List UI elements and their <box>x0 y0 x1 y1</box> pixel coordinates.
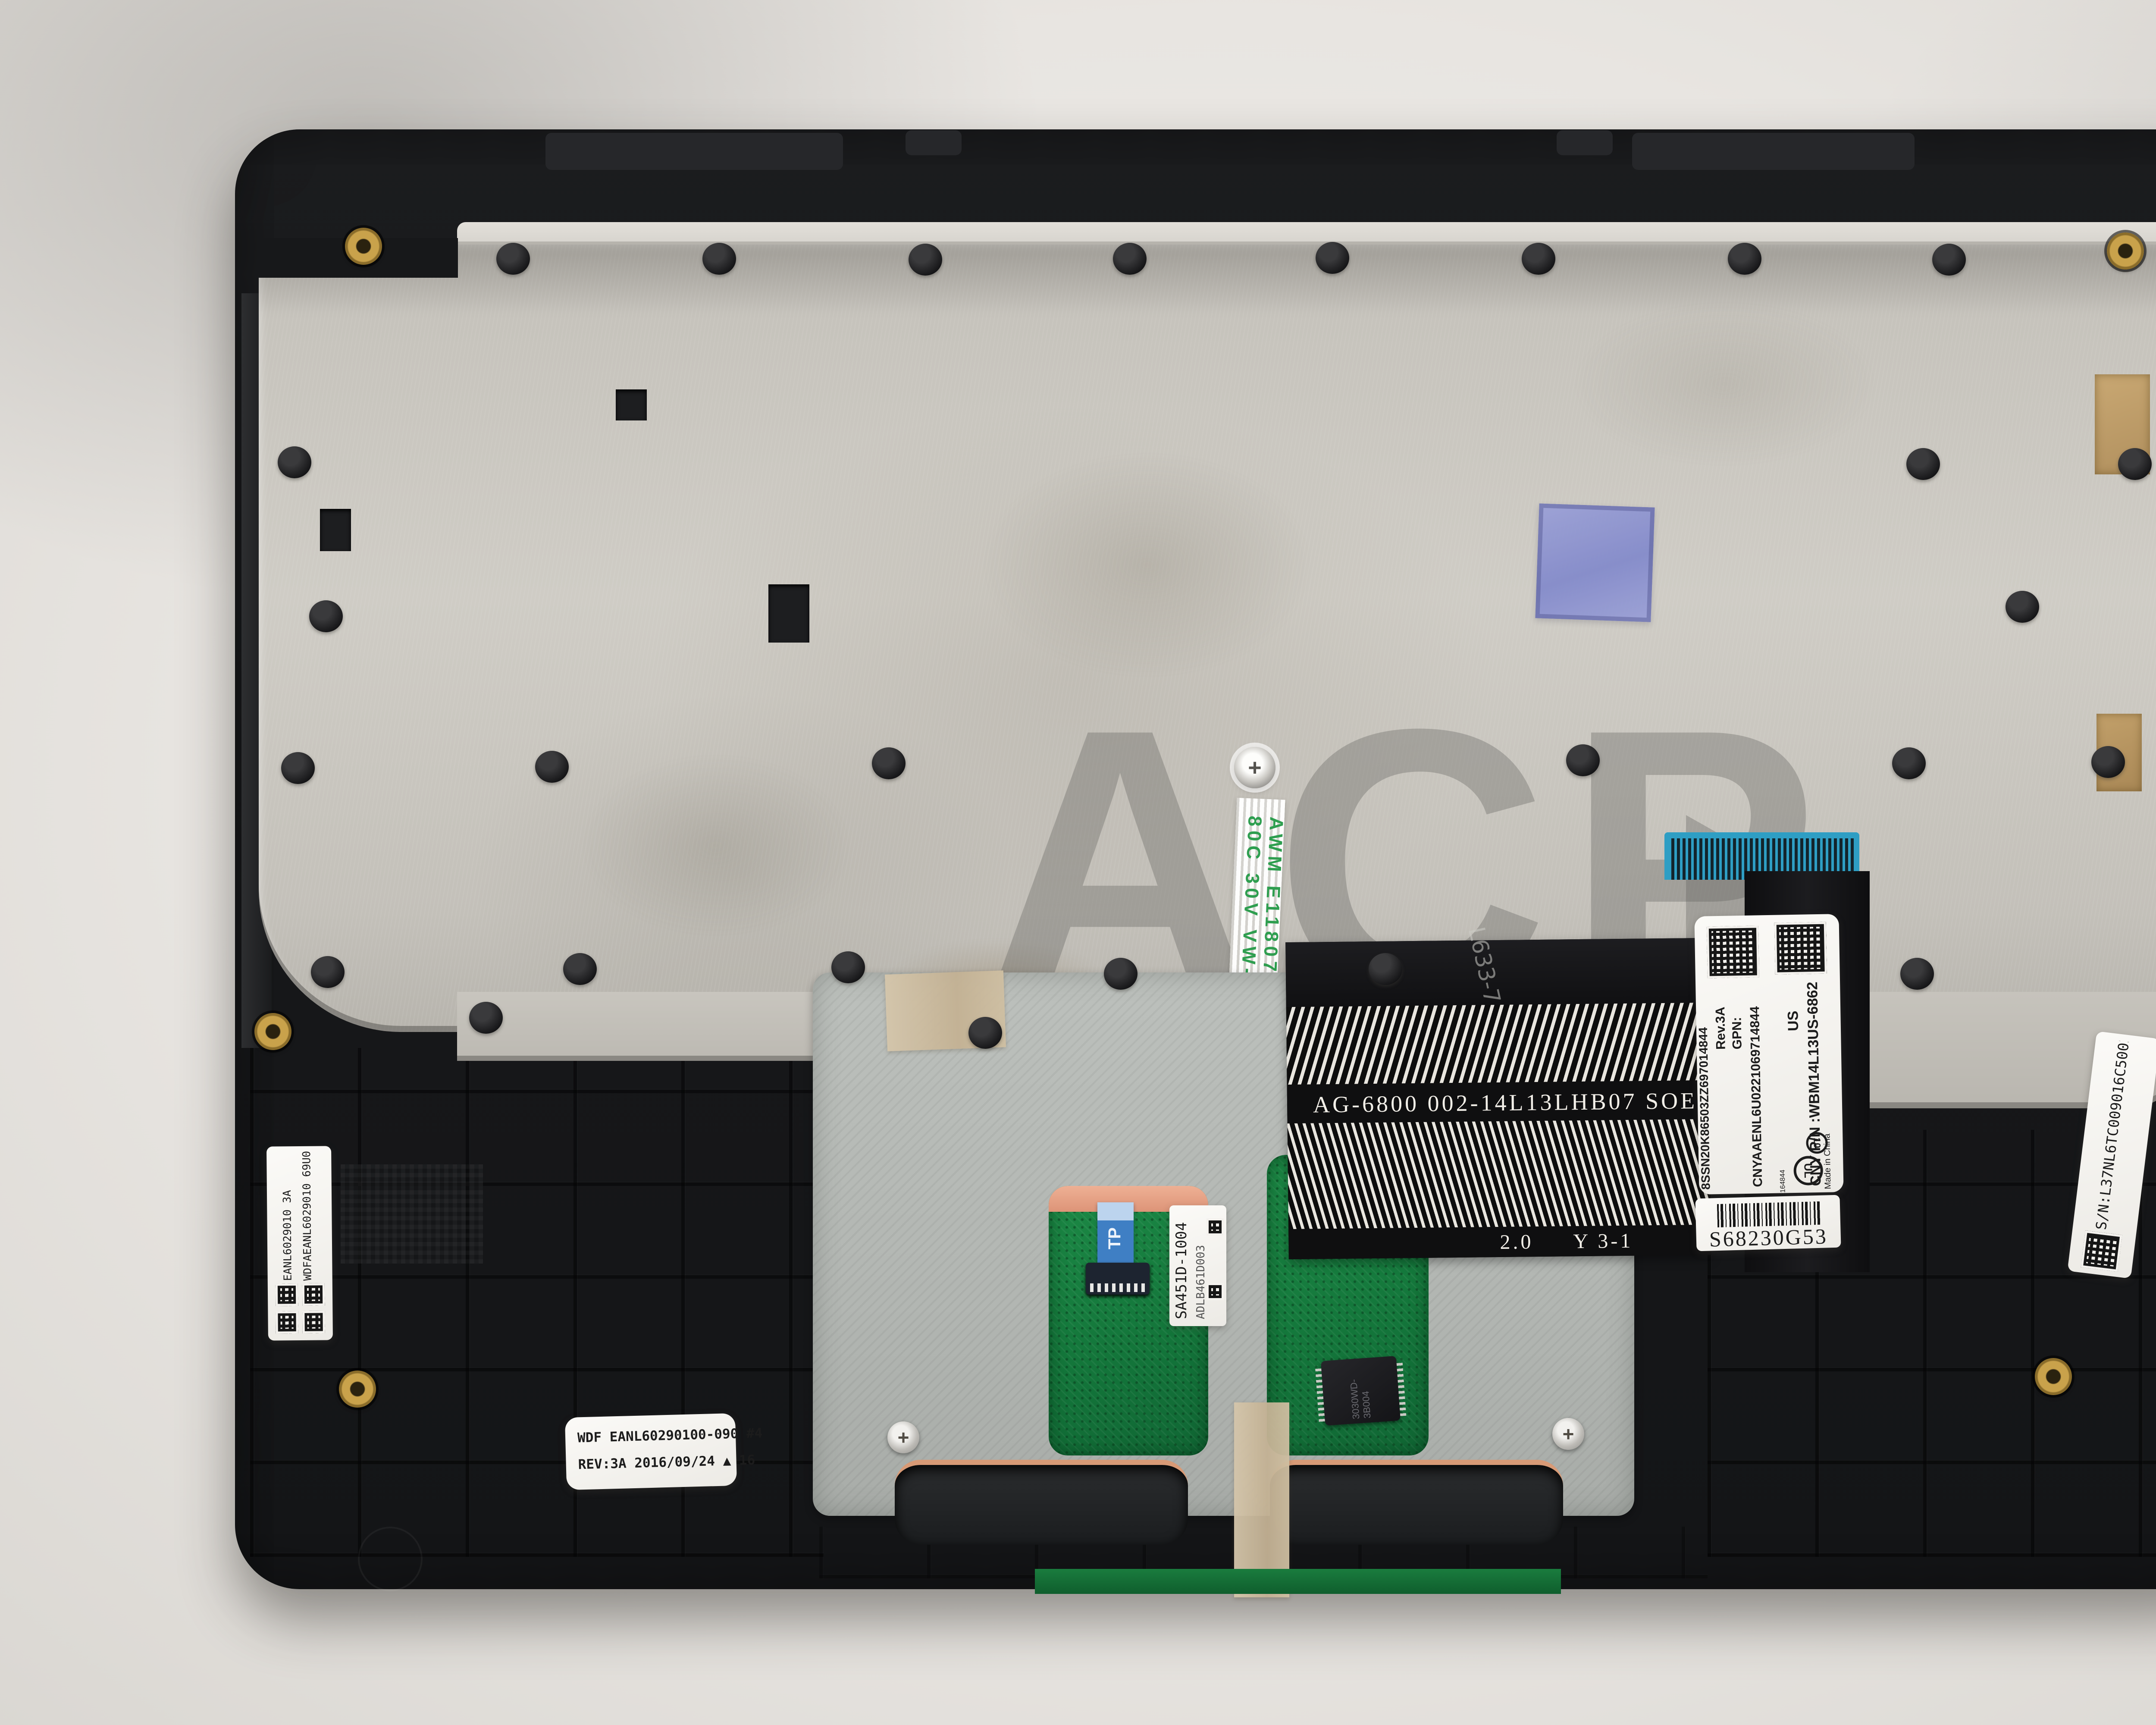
rubber-dot <box>968 1017 1002 1049</box>
part-label-pn: CNY P/N :WBM14L13US-6862 WBM14L1 <box>1804 979 1824 1186</box>
bracket-screw-left: + <box>887 1421 919 1453</box>
rubber-dot <box>1522 243 1555 275</box>
threaded-insert <box>2035 1358 2072 1395</box>
rubber-dot <box>831 951 865 983</box>
rubber-dot <box>1900 958 1934 990</box>
part-number-label: CNY P/N :WBM14L13US-6862 WBM14L1 US CNYA… <box>1694 914 1843 1195</box>
rubber-dot <box>278 446 311 478</box>
photo-stage: ACP + AWM E118077-K 2896 80C 30V VW-1 E1… <box>0 0 2156 1725</box>
part-label-madein: Made in China <box>1822 1120 1833 1189</box>
stain <box>1574 302 1876 466</box>
cable-thickness-text: 2.0 <box>1500 1230 1534 1254</box>
qr-code-icon <box>1206 1218 1224 1236</box>
molded-datamatrix <box>341 1164 483 1264</box>
threaded-insert <box>339 1371 376 1408</box>
rubber-dot <box>496 243 530 275</box>
pcb-bottom-edge <box>1035 1569 1561 1594</box>
rubber-dot <box>563 953 597 985</box>
rubber-dot <box>1113 243 1147 275</box>
qr-code-icon <box>2081 1230 2122 1272</box>
rubber-dot <box>1566 744 1600 776</box>
rubber-dot <box>1104 958 1138 990</box>
mold-label-line1: WDFAEANL6029010 69U00840 <box>300 1151 314 1281</box>
rubber-dot <box>909 244 942 276</box>
threaded-insert <box>2107 232 2144 270</box>
rubber-dot <box>2091 746 2125 778</box>
qr-code-icon <box>302 1311 325 1333</box>
touchpad-ffc-connector <box>1086 1263 1150 1295</box>
blue-masking-tape <box>1535 503 1655 622</box>
serial-number-text: S/N:L37NL6TC009016C5002184 <box>2093 1041 2132 1231</box>
part-label-code1: CNYAAENL6U0221069714844 <box>1747 980 1765 1187</box>
qr-code-icon <box>276 1311 298 1333</box>
rubber-dot <box>469 1002 503 1034</box>
plate-cutout <box>320 509 351 551</box>
latch-tab-right <box>1557 130 1613 155</box>
rubber-dot <box>1906 448 1940 480</box>
mold-code-label: WDFAEANL6029010 69U00840 EANL6029010 3A <box>266 1146 333 1340</box>
center-screw: + <box>1234 747 1275 788</box>
touchpad-label-inner: ADLB461D003 <box>1194 1211 1207 1319</box>
rubber-dot <box>1932 244 1966 276</box>
rubber-dot <box>1369 953 1402 985</box>
plate-cutout <box>616 389 647 420</box>
datamatrix-icon <box>1774 922 1827 975</box>
rubber-dot <box>1728 243 1761 275</box>
touchpad-label-outer: SA451D-1004 <box>1173 1211 1190 1319</box>
ul-code: E164844 <box>1779 1150 1787 1197</box>
cable-stripe-zone-upper <box>1286 1003 1710 1085</box>
bracket-cutout-right <box>1270 1460 1563 1545</box>
datamatrix-icon <box>1707 925 1759 978</box>
date-code-label: WDF EANL60290100-090 #4 REV:3A 2016/09/2… <box>565 1413 737 1490</box>
mold-label-line2: EANL6029010 3A <box>280 1151 294 1281</box>
rubber-dot <box>2118 448 2152 480</box>
stain <box>582 755 849 936</box>
part-label-region: US <box>1784 979 1802 1032</box>
rubber-dot <box>872 747 906 779</box>
barcode-icon <box>1717 1201 1821 1227</box>
bracket-screw-right: + <box>1552 1418 1584 1450</box>
threaded-insert <box>345 228 382 265</box>
rubber-dot <box>1892 747 1926 779</box>
rubber-dot <box>281 752 315 784</box>
cable-code-text: Y 3-1 <box>1573 1229 1633 1253</box>
backplate-top-shade <box>259 241 2156 313</box>
rib-grid-left <box>250 1048 824 1557</box>
cable-gloss-zone: L633-7 <box>1285 938 1709 1007</box>
cable-stripe-zone-lower <box>1288 1119 1711 1229</box>
bracket-cutout-left <box>895 1460 1188 1545</box>
connector-pins <box>1090 1283 1145 1292</box>
tp-flex-label: TP <box>1105 1227 1125 1249</box>
hinge-notch-right <box>1632 133 1915 170</box>
service-tag-text: S68230G53 <box>1696 1223 1841 1252</box>
plate-cutout <box>768 584 809 643</box>
fabric-tape-bottom <box>1234 1402 1289 1597</box>
latch-tab-left <box>906 130 962 155</box>
rubber-dot <box>309 600 343 632</box>
date-label-line2: REV:3A 2016/09/24 ▲ 16 <box>578 1452 755 1473</box>
hinge-notch-left <box>545 133 843 170</box>
cable-print-text: AG-6800 002-14L13LHB07 SOE-N <box>1313 1087 1727 1118</box>
stain <box>983 453 1311 677</box>
rubber-dot <box>535 751 569 783</box>
qr-code-icon <box>1206 1283 1224 1300</box>
touchpad-main-cable: L633-7 AG-6800 002-14L13LHB07 SOE-N 2.0 … <box>1285 938 1711 1259</box>
part-label-rev: Rev.3A <box>1713 981 1729 1050</box>
service-tag-label: S68230G53 <box>1695 1195 1841 1251</box>
rubber-dot <box>702 243 736 275</box>
chip-marking: 3030WD-3B004 <box>1347 1362 1373 1419</box>
rubber-dot <box>2006 591 2039 623</box>
part-label-gpn: GPN: <box>1729 980 1745 1050</box>
touchpad-controller-chip: 3030WD-3B004 <box>1321 1356 1401 1426</box>
qr-code-icon <box>302 1283 325 1305</box>
touchpad-flex-cable: TP <box>1097 1202 1134 1267</box>
cable-print-band: AG-6800 002-14L13LHB07 SOE-N <box>1287 1080 1710 1123</box>
rubber-dot <box>1316 242 1349 274</box>
qr-code-icon <box>276 1283 298 1306</box>
molded-date-wheel <box>358 1527 423 1591</box>
rubber-dot <box>311 956 345 988</box>
cable-bottom-band: 2.0 Y 3-1 <box>1288 1225 1711 1259</box>
date-label-line1: WDF EANL60290100-090 #4 <box>577 1425 763 1446</box>
touchpad-pcb-label: SA451D-1004 ADLB461D003 <box>1169 1205 1226 1326</box>
threaded-insert <box>254 1013 291 1050</box>
